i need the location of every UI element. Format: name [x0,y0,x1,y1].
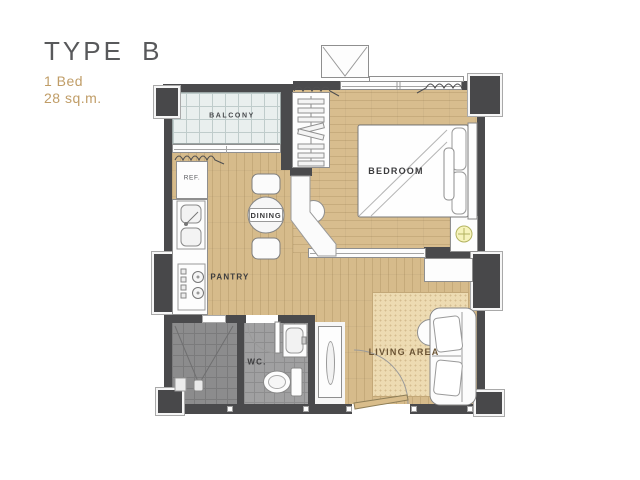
ac-condenser-unit [321,45,369,78]
title-block: TYPE B 1 Bed 28 sq.m. [44,36,162,107]
column-bottom-right [474,390,504,416]
balcony-sliding-door [172,144,281,153]
dining-label: DINING [250,211,281,220]
living-area-label: LIVING AREA [369,347,440,357]
column-top-left [154,86,180,118]
wall-shower-wc [237,322,244,404]
wc-door-opening [246,315,278,323]
side-table [417,319,444,346]
nightstand [450,216,478,252]
column-top-right [468,74,502,116]
wall-joint [411,406,417,412]
entry-cabinet [318,326,342,398]
unit-type-title: TYPE B [44,36,162,67]
wc-label: WC. [247,358,266,367]
refrigerator-label: REF. [184,175,201,182]
column-mid-right [471,252,502,310]
bedroom-window [340,81,462,90]
balcony-label: BALCONY [209,113,255,120]
wardrobe-closet [292,92,330,168]
stool [302,200,325,223]
column-bottom-left [156,388,184,415]
wall-wc-entry [308,322,315,404]
pantry-label: PANTRY [210,273,249,282]
entrance-opening [352,404,410,414]
floorplan-canvas: TYPE B 1 Bed 28 sq.m. [0,0,640,480]
wall-bottom-left [164,404,352,414]
unit-area: 28 sq.m. [44,90,162,107]
bedroom-sliding-partition [308,248,426,258]
wall-joint [346,406,352,412]
kitchen-counter [172,199,208,315]
wall-left [164,84,172,413]
wall-top-balcony [163,84,293,92]
living-rug [372,292,469,397]
wall-partition-stub [290,168,312,176]
bedroom-label: BEDROOM [368,166,423,176]
shower-entry-gap [202,315,226,323]
wall-top-bedroom-left [293,81,340,90]
wall-wet-top-a [164,315,202,323]
wall-joint [467,406,473,412]
unit-bedrooms: 1 Bed [44,73,162,90]
wall-joint [227,406,233,412]
tv-console [424,258,473,282]
ac-ledge [369,76,464,82]
dining-label-box: DINING [249,208,283,222]
wall-joint [303,406,309,412]
wall-right [477,81,485,414]
